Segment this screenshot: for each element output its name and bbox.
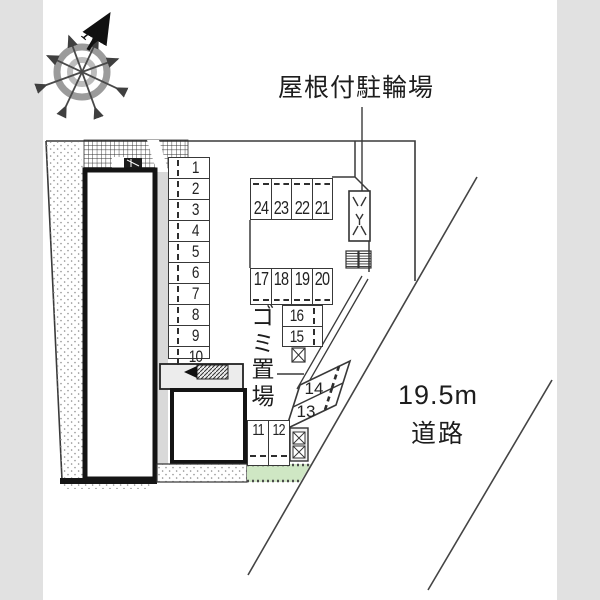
planting-strip xyxy=(247,464,311,482)
stall-number: 9 xyxy=(192,326,199,346)
building-south-wall xyxy=(60,478,157,484)
page-left-band xyxy=(0,0,43,600)
stall-number: 22 xyxy=(295,198,309,219)
page-right-band xyxy=(557,0,600,600)
stall-number: 19 xyxy=(295,269,309,290)
stall-divider-dash xyxy=(250,455,266,457)
equipment-box-icon xyxy=(290,428,308,461)
stall-divider-dash xyxy=(177,286,179,302)
parking-space-22: 22 xyxy=(291,179,312,219)
stairs-icon xyxy=(197,365,228,379)
parking-space-5: 5 xyxy=(169,241,209,262)
stall-divider-dash xyxy=(177,328,179,344)
main-building xyxy=(85,170,155,479)
stall-number: 6 xyxy=(192,263,199,283)
stall-number: 3 xyxy=(192,200,199,220)
stall-divider-dash xyxy=(274,183,290,185)
utility-box-icon xyxy=(292,348,305,362)
hatched-box-icon xyxy=(346,251,358,268)
parking-space-18: 18 xyxy=(271,269,292,304)
diagonal-stall-block: 14 13 xyxy=(286,361,350,429)
parking-space-20: 20 xyxy=(312,269,333,304)
label-road-width: 19.5m xyxy=(386,380,490,411)
walkway-strip xyxy=(157,172,168,464)
stall-number: 5 xyxy=(192,242,199,262)
stall-number: 10 xyxy=(188,347,202,367)
parking-space-9: 9 xyxy=(169,325,209,346)
stall-divider-dash xyxy=(177,160,179,176)
stall-number: 17 xyxy=(254,269,268,290)
stall-number: 23 xyxy=(274,198,288,219)
stall-divider-dash xyxy=(177,307,179,323)
hatched-box-icon xyxy=(359,251,371,268)
stall-number: 21 xyxy=(315,198,329,219)
stall-number: 20 xyxy=(315,269,329,290)
stall-number: 13 xyxy=(297,402,316,421)
parking-space-10: 10 xyxy=(169,346,209,367)
south-gravel xyxy=(62,484,150,489)
stall-number: 8 xyxy=(192,305,199,325)
stall-number: 1 xyxy=(192,158,199,178)
parking-space-7: 7 xyxy=(169,283,209,304)
parking-space-1: 1 xyxy=(169,158,209,178)
stall-divider-dash xyxy=(274,299,290,301)
parking-space-23: 23 xyxy=(271,179,292,219)
parking-space-21: 21 xyxy=(312,179,333,219)
stall-divider-dash xyxy=(177,349,179,365)
stall-number: 7 xyxy=(192,284,199,304)
parking-space-6: 6 xyxy=(169,262,209,283)
stall-number: 11 xyxy=(252,422,263,440)
stall-divider-dash xyxy=(177,244,179,260)
stall-number: 15 xyxy=(290,327,304,347)
stall-divider-dash xyxy=(177,265,179,281)
parking-space-12: 12 xyxy=(268,421,289,465)
stall-number: 16 xyxy=(290,306,304,326)
stall-number: 2 xyxy=(192,179,199,199)
stall-divider-dash xyxy=(313,329,315,345)
stall-divider-dash xyxy=(315,183,331,185)
stall-divider-dash xyxy=(315,299,331,301)
parking-stack-16-15: 1615 xyxy=(282,305,323,347)
label-road-name: 道路 xyxy=(386,414,490,450)
stall-number: 18 xyxy=(274,269,288,290)
parking-space-3: 3 xyxy=(169,199,209,220)
left-gravel-strip xyxy=(46,141,84,480)
stall-divider-dash xyxy=(253,183,269,185)
parking-space-17: 17 xyxy=(251,269,271,304)
parking-space-19: 19 xyxy=(291,269,312,304)
parking-space-4: 4 xyxy=(169,220,209,241)
parking-space-24: 24 xyxy=(251,179,271,219)
stall-divider-dash xyxy=(271,455,287,457)
parking-space-16: 16 xyxy=(283,306,322,326)
parking-space-8: 8 xyxy=(169,304,209,325)
label-garbage-area: ゴミ置場 xyxy=(246,303,280,409)
stall-divider-dash xyxy=(253,299,269,301)
compass-rose-icon: N xyxy=(46,18,117,108)
stall-divider-dash xyxy=(294,299,310,301)
parking-row-24-21: 24232221 xyxy=(250,178,333,220)
parking-row-11-12: 1112 xyxy=(247,420,290,466)
parking-space-11: 11 xyxy=(248,421,268,465)
bicycle-rack-icon xyxy=(349,191,370,241)
stall-divider-dash xyxy=(294,183,310,185)
stall-number: 4 xyxy=(192,221,199,241)
parking-row-17-20: 17181920 xyxy=(250,268,333,305)
parking-column-1-10: 12345678910 xyxy=(168,157,210,359)
stall-divider-dash xyxy=(177,223,179,239)
stall-number: 24 xyxy=(254,198,268,219)
south-walkway-strip xyxy=(157,464,247,482)
parking-space-2: 2 xyxy=(169,178,209,199)
label-road: 19.5m 道路 xyxy=(386,380,490,450)
stall-number: 14 xyxy=(305,379,324,398)
parking-space-15: 15 xyxy=(283,326,322,347)
stall-divider-dash xyxy=(177,181,179,197)
site-plan-canvas: 14 13 N 屋根付駐輪場 ゴミ置場 19.5m 道路 12345678910… xyxy=(0,0,600,600)
annex-building xyxy=(172,390,245,462)
label-covered-bicycle-parking: 屋根付駐輪場 xyxy=(278,68,458,104)
stall-divider-dash xyxy=(313,308,315,324)
stall-divider-dash xyxy=(177,202,179,218)
stall-number: 12 xyxy=(273,422,285,440)
